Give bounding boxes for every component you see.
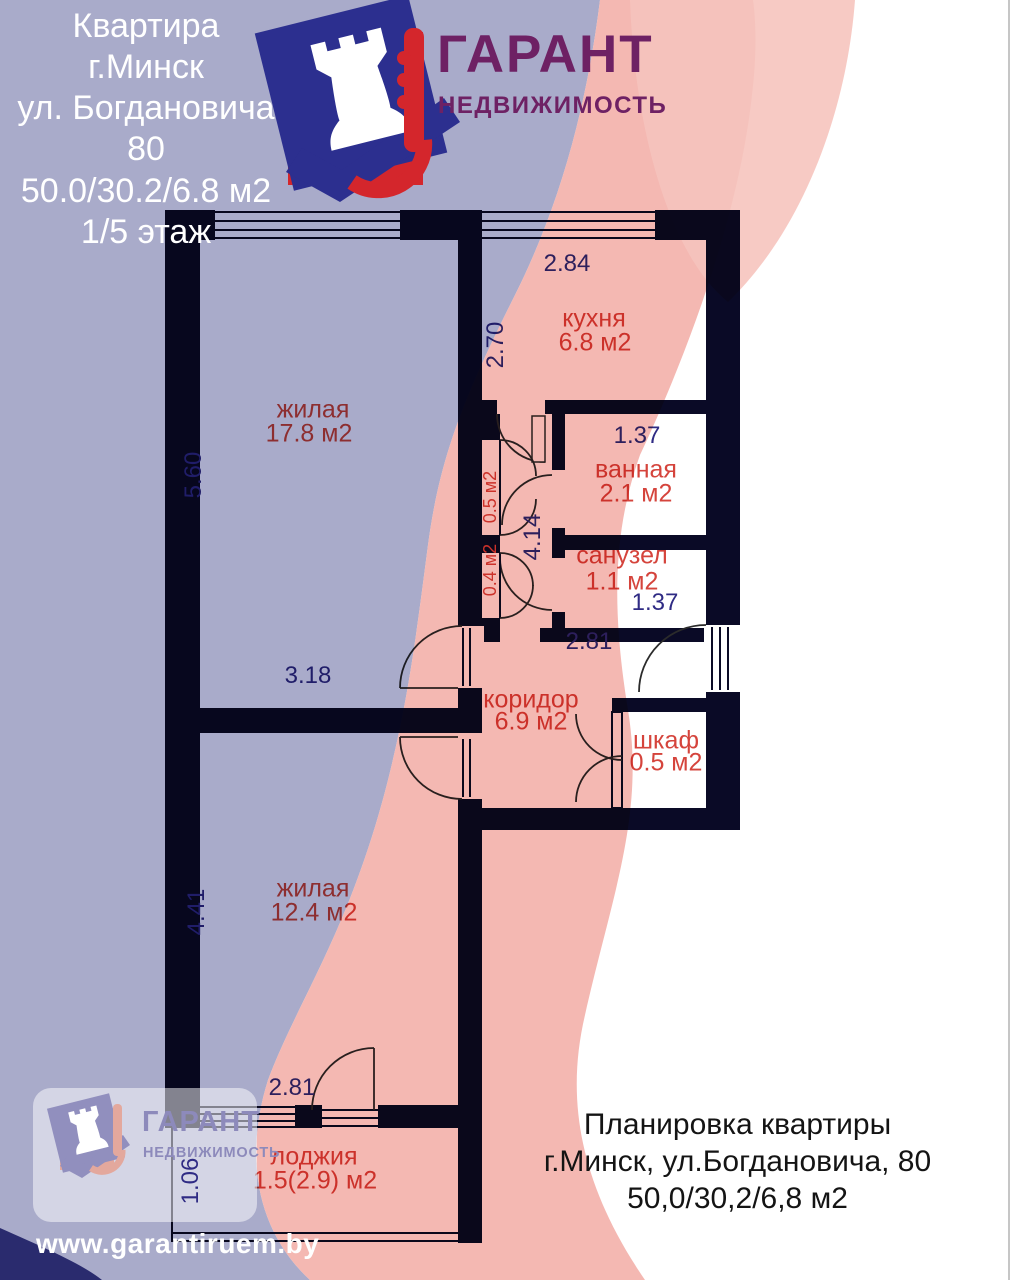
website-url: www.garantiruem.by	[36, 1230, 319, 1258]
caption-line-title: Планировка квартиры	[530, 1106, 945, 1143]
dim-loggia-depth: 1.06	[179, 1158, 203, 1205]
plan-caption: Планировка квартиры г.Минск, ул.Богданов…	[530, 1106, 945, 1218]
watermark-tagline: НЕДВИЖИМОСТЬ	[143, 1146, 280, 1161]
listing-header: Квартира г.Минск ул. Богдановича 80 50.0…	[0, 6, 292, 253]
logo-wordmark: ГАРАНТ	[437, 28, 654, 81]
page-right-border	[1008, 0, 1010, 1280]
header-line-floor: 1/5 этаж	[0, 212, 292, 253]
header-line-areas: 50.0/30.2/6.8 м2	[0, 171, 292, 212]
logo-tagline: НЕДВИЖИМОСТЬ	[438, 94, 667, 118]
header-line-city: г.Минск	[0, 47, 292, 88]
caption-line-address: г.Минск, ул.Богдановича, 80	[530, 1143, 945, 1180]
watermark-wordmark: ГАРАНТ	[142, 1108, 260, 1137]
header-line-street: ул. Богдановича 80	[0, 88, 292, 170]
header-line-type: Квартира	[0, 6, 292, 47]
flyer-page: жилая 17.8 м2 кухня 6.8 м2 ванная 2.1 м2…	[0, 0, 1012, 1280]
caption-line-areas: 50,0/30,2/6,8 м2	[530, 1180, 945, 1217]
